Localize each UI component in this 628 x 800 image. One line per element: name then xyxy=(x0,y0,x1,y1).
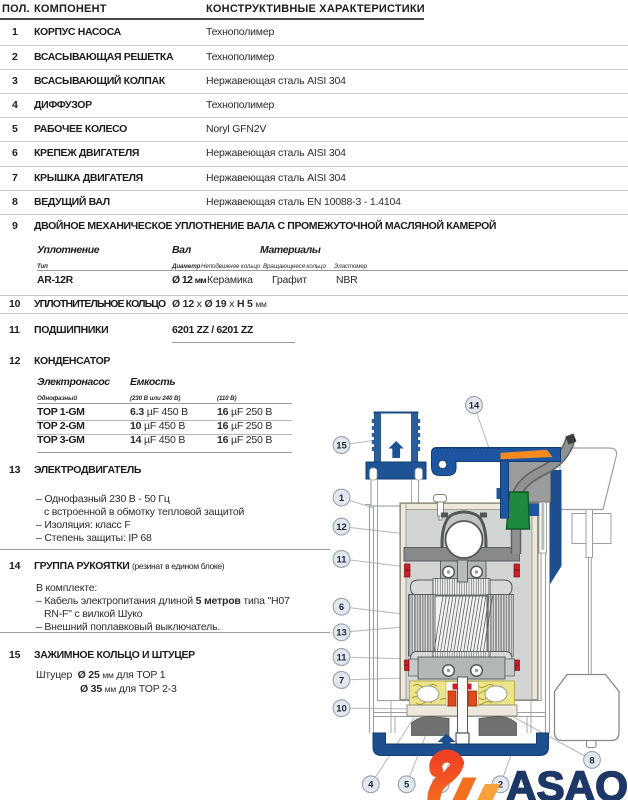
svg-text:10: 10 xyxy=(336,704,347,715)
svg-text:5: 5 xyxy=(404,780,410,791)
svg-text:11: 11 xyxy=(336,652,347,663)
svg-text:13: 13 xyxy=(336,628,347,639)
svg-text:ASAO: ASAO xyxy=(506,763,628,800)
svg-text:1: 1 xyxy=(339,493,345,504)
svg-text:4: 4 xyxy=(368,780,374,791)
svg-text:7: 7 xyxy=(339,675,344,686)
svg-text:14: 14 xyxy=(469,400,480,411)
svg-text:15: 15 xyxy=(336,440,347,451)
svg-text:6: 6 xyxy=(339,602,344,613)
svg-text:12: 12 xyxy=(336,522,347,533)
svg-text:11: 11 xyxy=(336,554,347,565)
